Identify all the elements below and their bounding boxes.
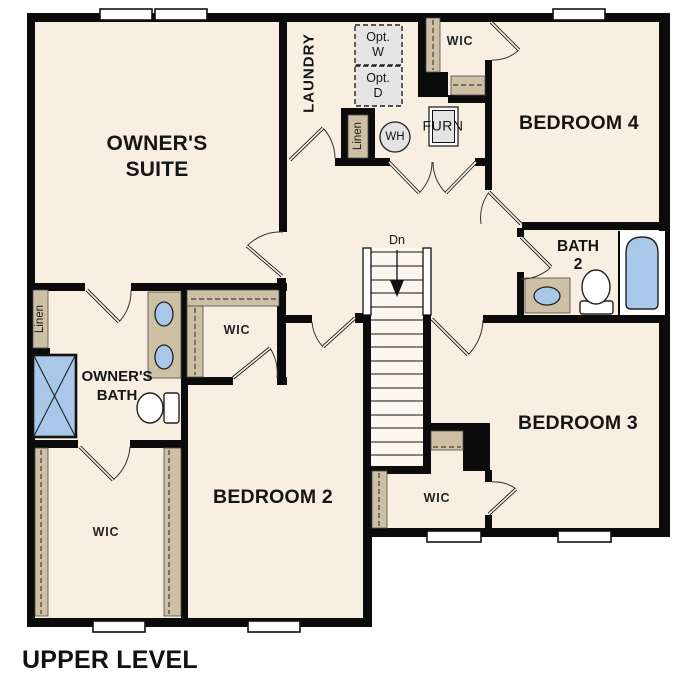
optional-washer-label: Opt.W: [366, 30, 390, 60]
furnace-label: FURN: [423, 117, 464, 135]
water-heater-label: WH: [385, 130, 404, 144]
bath-linen-label: Linen: [33, 305, 47, 333]
floor-plan: OWNER'SSUITE LAUNDRY WIC Opt.W Opt.D Lin…: [0, 0, 687, 687]
vanity-sink: [155, 345, 173, 369]
owners-suite-label: OWNER'SSUITE: [107, 131, 208, 183]
bedroom3-wic-label: WIC: [424, 491, 451, 507]
bedroom2-label: BEDROOM 2: [213, 485, 333, 509]
hall-linen-label: Linen: [351, 122, 365, 150]
vanity-sink: [534, 287, 560, 305]
staircase: [363, 248, 431, 466]
bedroom3-label: BEDROOM 3: [518, 411, 638, 435]
bathtub: [626, 237, 658, 309]
optional-dryer-label: Opt.D: [366, 71, 390, 101]
stair-railing-right: [423, 248, 431, 315]
stair-railing-left: [363, 248, 371, 315]
bedroom2-wic-label: WIC: [224, 323, 251, 339]
bedroom4-wic-label: WIC: [447, 34, 474, 50]
floor-plan-drawing: [0, 0, 687, 687]
bath2-label: BATH2: [557, 238, 599, 274]
stairs-down-label: Dn: [389, 233, 405, 249]
laundry-label: LAUNDRY: [301, 33, 320, 113]
bedroom4-label: BEDROOM 4: [519, 111, 639, 135]
plan-title: UPPER LEVEL: [22, 645, 198, 676]
owners-bath-label: OWNER'SBATH: [81, 367, 152, 405]
owners-wic-label: WIC: [93, 525, 120, 541]
vanity-sink: [155, 302, 173, 326]
